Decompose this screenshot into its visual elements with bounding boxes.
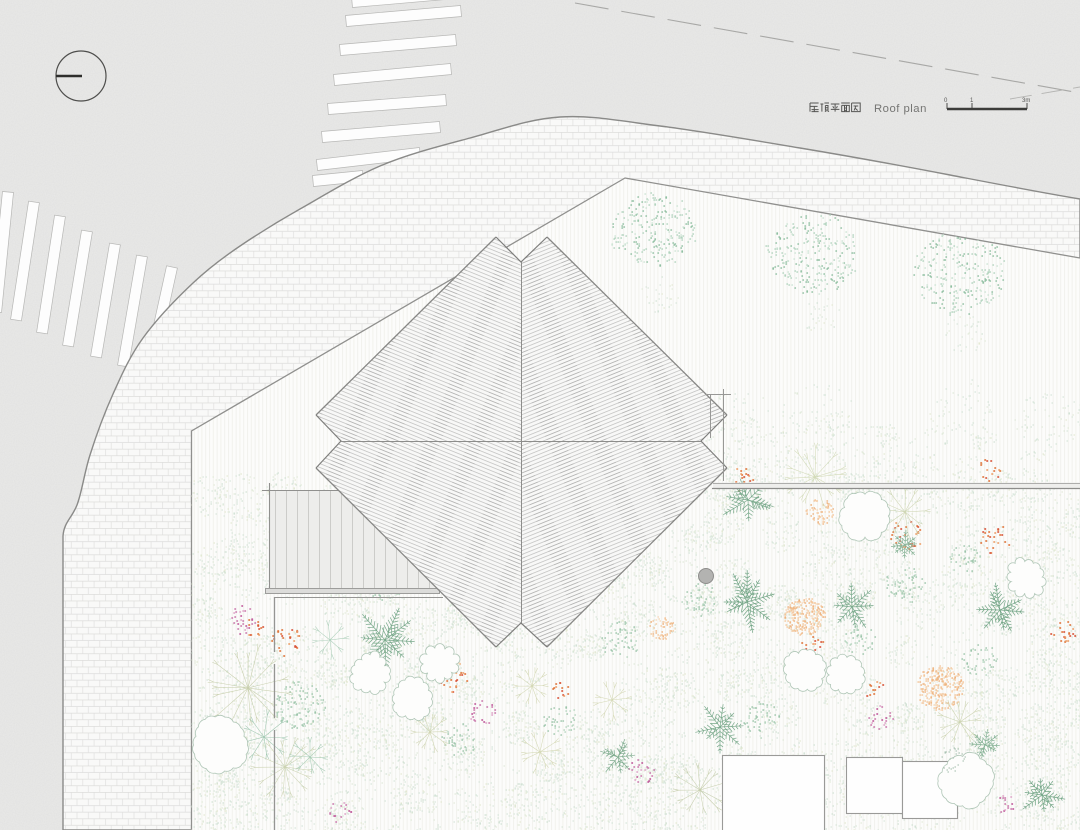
svg-text:Roof plan: Roof plan bbox=[874, 103, 927, 115]
svg-text:3m: 3m bbox=[1022, 98, 1030, 104]
